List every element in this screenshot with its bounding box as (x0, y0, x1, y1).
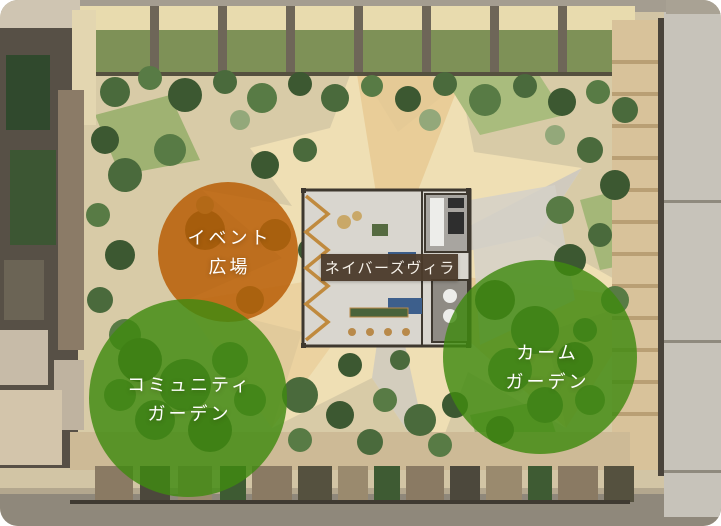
zone-label-line: カーム (446, 339, 646, 368)
zone-label-calm-garden: カーム ガーデン (446, 339, 646, 397)
zone-label-line: 広場 (128, 253, 328, 282)
zone-label-line: イベント (128, 224, 328, 253)
zone-label-line: ガーデン (88, 400, 288, 429)
compass-rose-icon (578, 465, 614, 509)
villa-name-text: ネイバーズヴィラ (323, 257, 455, 278)
villa-name-plate: ネイバーズヴィラ (321, 254, 458, 281)
site-plan: イベント 広場 コミュニティ ガーデン カーム ガーデン ネイバーズヴィラ (0, 0, 721, 526)
zone-label-community-garden: コミュニティ ガーデン (88, 371, 288, 429)
perimeter-buildings-left (0, 0, 96, 468)
zone-label-line: ガーデン (446, 368, 646, 397)
zone-label-line: コミュニティ (88, 371, 288, 400)
zone-label-event-plaza: イベント 広場 (128, 224, 328, 282)
site-plan-render: イベント 広場 コミュニティ ガーデン カーム ガーデン ネイバーズヴィラ (0, 0, 721, 526)
perimeter-buildings-top (80, 6, 635, 76)
